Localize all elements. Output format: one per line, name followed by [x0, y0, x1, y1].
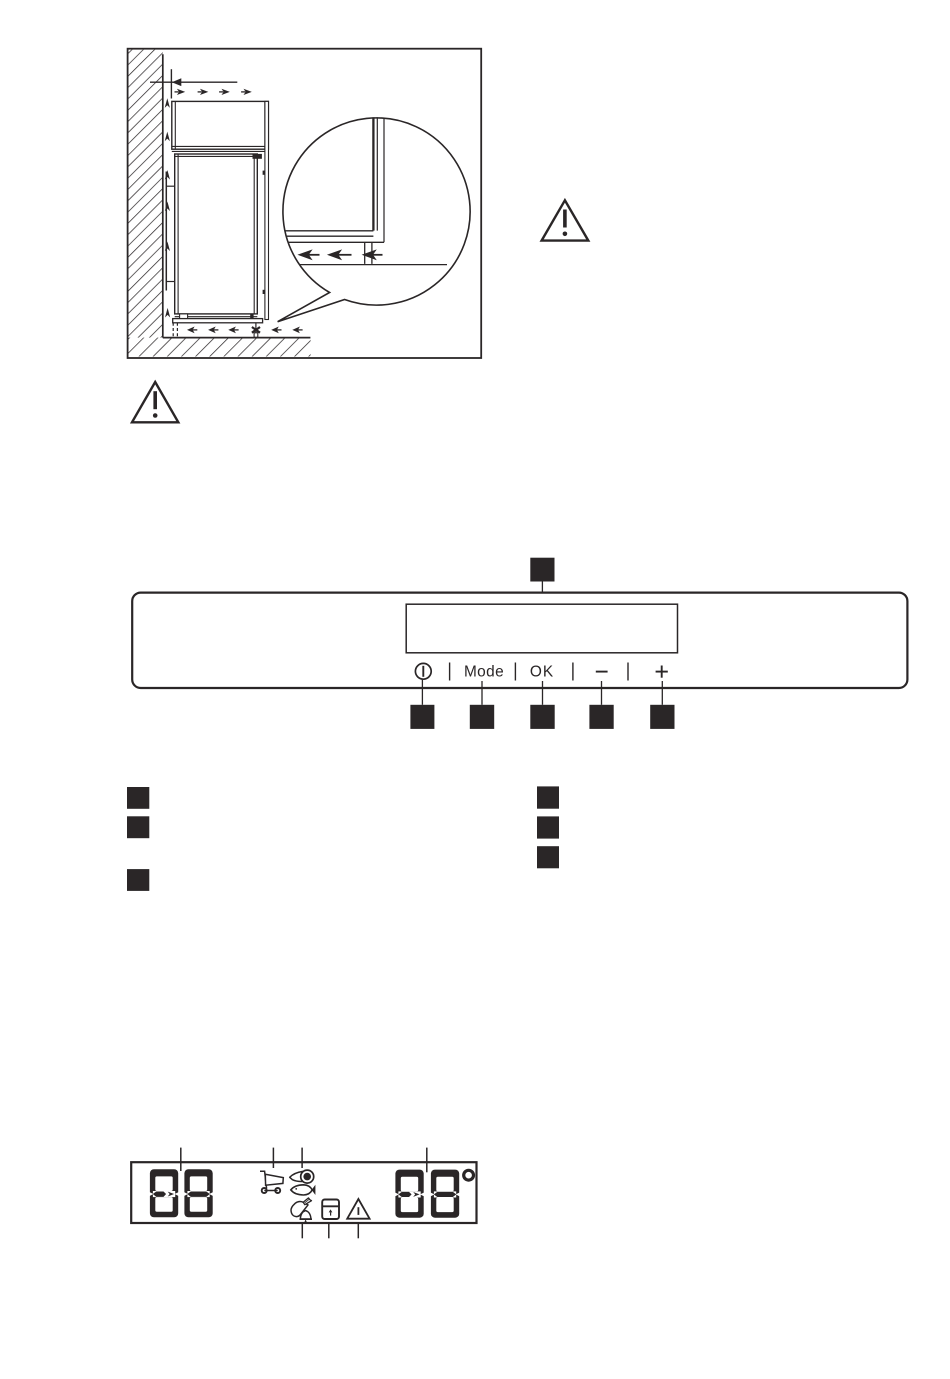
svg-text:Mode: Mode	[464, 664, 504, 681]
svg-text:OK: OK	[530, 664, 554, 681]
